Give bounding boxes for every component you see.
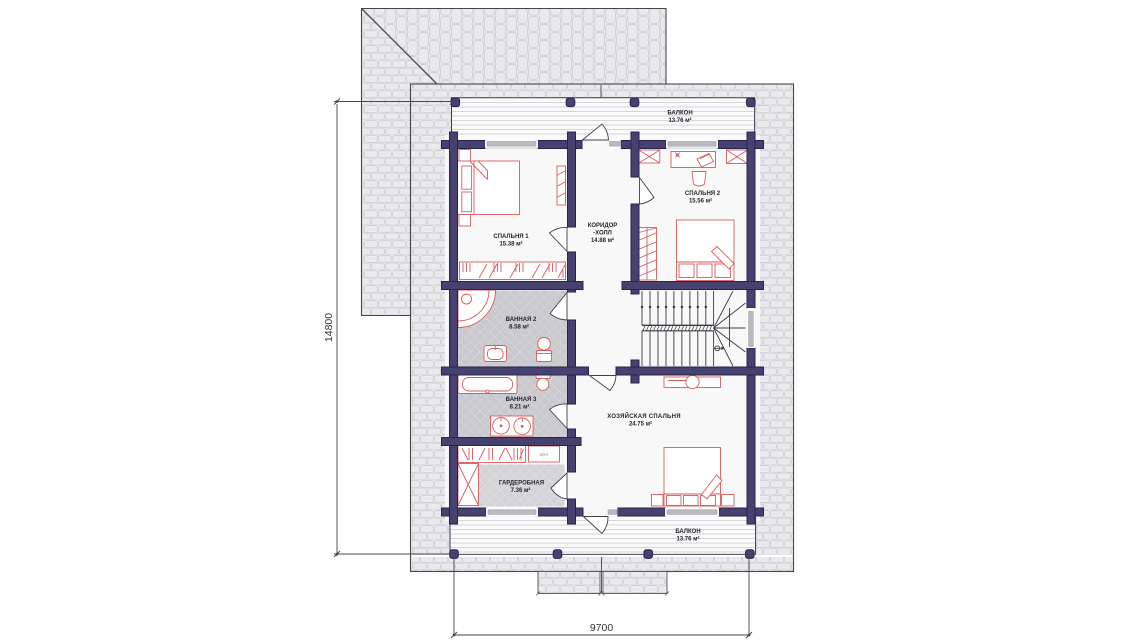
svg-text:24.75 м²: 24.75 м² [629, 421, 652, 428]
svg-text:8.21 м²: 8.21 м² [510, 404, 530, 411]
svg-text:КОРИДОР: КОРИДОР [588, 223, 618, 229]
svg-text:ХОЗЯЙСКАЯ СПАЛЬНЯ: ХОЗЯЙСКАЯ СПАЛЬНЯ [607, 412, 681, 420]
svg-text:ВЕНТ: ВЕНТ [539, 453, 548, 457]
svg-text:13.76 м²: 13.76 м² [676, 536, 699, 543]
svg-text:БАЛКОН: БАЛКОН [675, 529, 700, 535]
svg-text:14800: 14800 [323, 313, 335, 342]
svg-text:БАЛКОН: БАЛКОН [667, 111, 692, 117]
svg-text:14.88 м²: 14.88 м² [591, 237, 614, 244]
svg-text:ГАРДЕРОБНАЯ: ГАРДЕРОБНАЯ [499, 481, 544, 487]
svg-text:8.58 м²: 8.58 м² [509, 324, 529, 331]
svg-text:15.38 м²: 15.38 м² [499, 241, 522, 248]
svg-text:СПАЛЬНЯ 1: СПАЛЬНЯ 1 [493, 234, 529, 240]
svg-text:СПАЛЬНЯ 2: СПАЛЬНЯ 2 [685, 191, 721, 197]
svg-text:13.76 м²: 13.76 м² [668, 117, 691, 124]
svg-text:7.36 м²: 7.36 м² [511, 487, 531, 494]
svg-text:9700: 9700 [590, 622, 614, 634]
svg-text:15.56 м²: 15.56 м² [689, 198, 712, 205]
svg-text:ВАННАЯ 3: ВАННАЯ 3 [506, 397, 537, 403]
svg-text:ВАННАЯ 2: ВАННАЯ 2 [506, 317, 537, 323]
svg-text:-ХОЛЛ: -ХОЛЛ [593, 231, 612, 237]
